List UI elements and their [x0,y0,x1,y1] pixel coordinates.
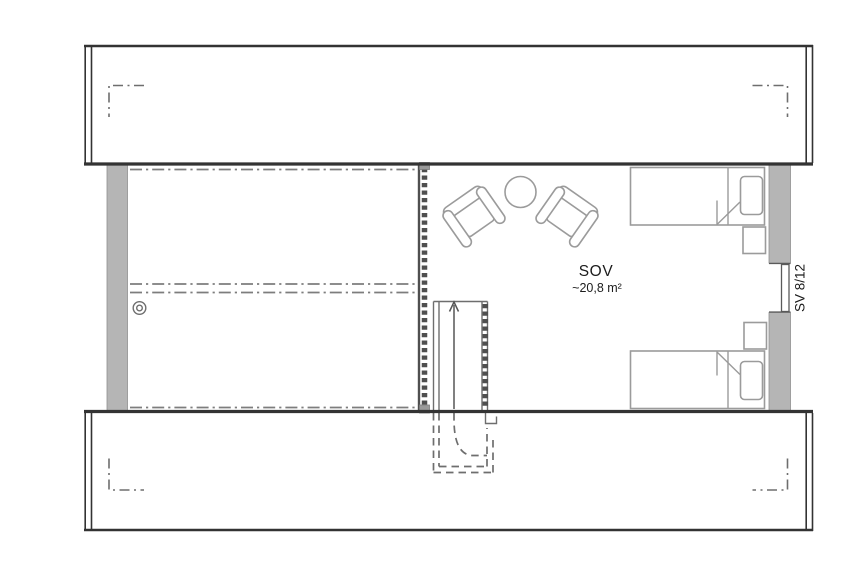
staircase [434,302,497,424]
attic-room [130,170,417,408]
floor-plan-drawing: SOV ~20,8 m² SV 8/12 [0,0,864,576]
room-area-label: ~20,8 m² [572,281,622,295]
armchair-right [534,183,602,249]
roof-overhang-top [84,45,813,163]
bed-top [631,168,765,226]
room-name-label: SOV [579,263,614,280]
corner-mark-top-left [109,86,144,118]
nightstand-bottom [744,323,767,350]
window-frame [782,265,790,312]
floor-plan-canvas: SOV ~20,8 m² SV 8/12 [0,0,864,576]
corner-mark-top-right [753,86,788,118]
bed-bottom [631,351,765,409]
chimney-pipe-symbol [133,302,146,315]
nightstand-top [743,227,766,254]
left-gable-wall [107,164,128,412]
walk-line-dashed [454,413,487,456]
window-size-label: SV 8/12 [793,264,808,312]
corner-mark-bottom-left [109,459,144,491]
pillow [741,362,763,400]
armchair-left [439,183,507,249]
pillow [741,177,763,215]
divider-railing [419,163,430,414]
corner-mark-bottom-right [753,459,788,491]
stair-below-dashed [434,413,494,473]
round-table [505,177,536,208]
window-sv-8-12 [769,264,791,313]
handrail-return [486,413,497,424]
